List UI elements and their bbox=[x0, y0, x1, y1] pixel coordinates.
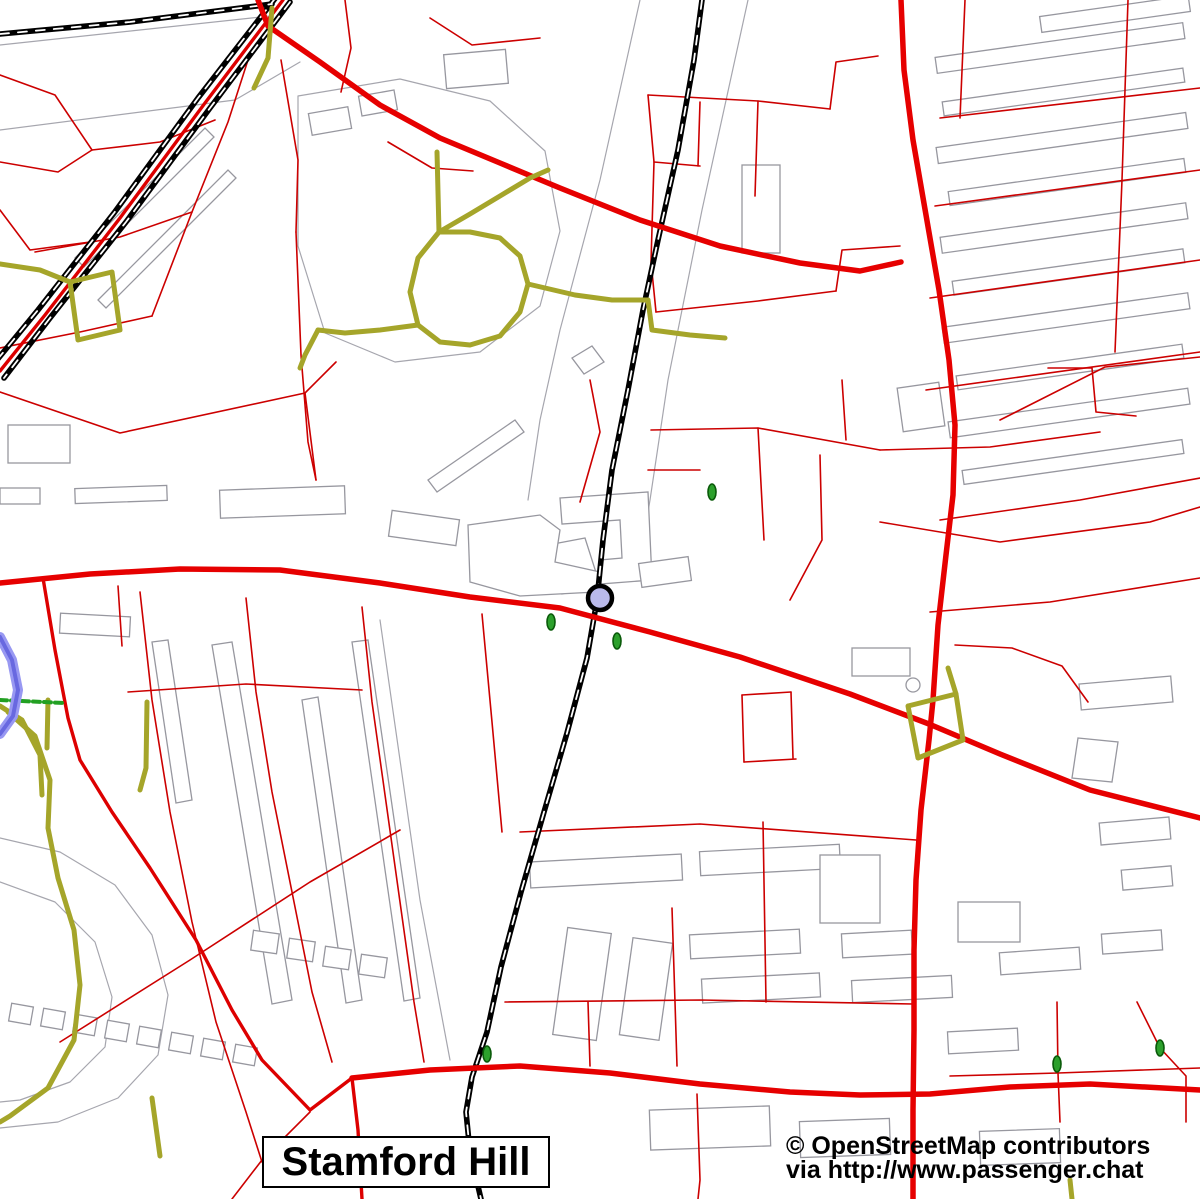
building-outline bbox=[742, 165, 780, 253]
building-outline bbox=[251, 930, 280, 953]
building-outline bbox=[323, 946, 352, 969]
building-outline bbox=[649, 1106, 770, 1150]
building-outline bbox=[689, 929, 800, 959]
tree-icon bbox=[1053, 1056, 1061, 1072]
attribution: © OpenStreetMap contributors via http://… bbox=[786, 1134, 1150, 1182]
building-outline bbox=[852, 648, 910, 676]
building-outline bbox=[958, 902, 1020, 942]
place-label: Stamford Hill bbox=[262, 1136, 550, 1188]
building-outline bbox=[137, 1026, 162, 1048]
building-outline bbox=[947, 1028, 1018, 1054]
building-outline bbox=[999, 947, 1080, 975]
attribution-line-1: © OpenStreetMap contributors bbox=[786, 1134, 1150, 1158]
building-outline bbox=[75, 485, 167, 503]
building-outline bbox=[1121, 866, 1173, 890]
footpath bbox=[47, 700, 48, 748]
tree-icon bbox=[708, 484, 716, 500]
map-canvas[interactable] bbox=[0, 0, 1200, 1199]
attribution-line-2: via http://www.passenger.chat bbox=[786, 1158, 1150, 1182]
footpath bbox=[437, 152, 439, 232]
tree-icon bbox=[613, 633, 621, 649]
building-outline bbox=[169, 1032, 194, 1054]
building-outline bbox=[897, 382, 945, 431]
building-outline bbox=[444, 49, 509, 88]
tree-icon bbox=[483, 1046, 491, 1062]
building-outline bbox=[8, 425, 70, 463]
building-outline bbox=[41, 1008, 66, 1030]
building-outline bbox=[287, 938, 316, 961]
building-outline bbox=[359, 954, 388, 977]
tree-icon bbox=[1156, 1040, 1164, 1056]
tree-icon bbox=[547, 614, 555, 630]
building-outline bbox=[820, 855, 880, 923]
building-outline bbox=[1101, 930, 1162, 954]
building-outline bbox=[841, 930, 912, 958]
building-outline bbox=[851, 975, 952, 1002]
building-outline bbox=[0, 488, 40, 504]
building-outline bbox=[220, 486, 346, 518]
building-outline bbox=[906, 678, 920, 692]
building-outline bbox=[1072, 738, 1118, 782]
building-outline bbox=[9, 1003, 34, 1025]
station-marker[interactable] bbox=[588, 586, 612, 610]
building-outline bbox=[105, 1020, 130, 1042]
map-viewport[interactable]: Stamford Hill © OpenStreetMap contributo… bbox=[0, 0, 1200, 1199]
